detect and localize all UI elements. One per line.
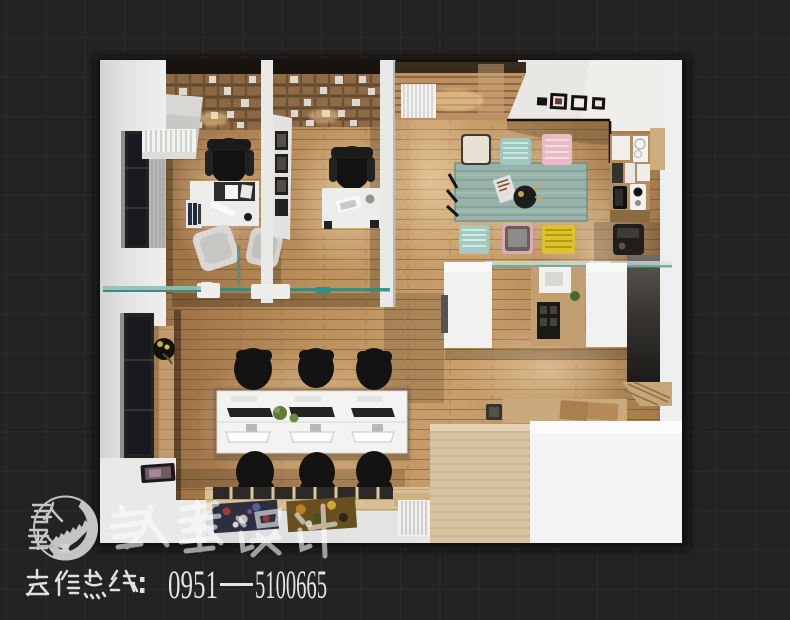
svg-text:5100665: 5100665 [255, 562, 327, 607]
svg-text:0951: 0951 [168, 562, 218, 607]
